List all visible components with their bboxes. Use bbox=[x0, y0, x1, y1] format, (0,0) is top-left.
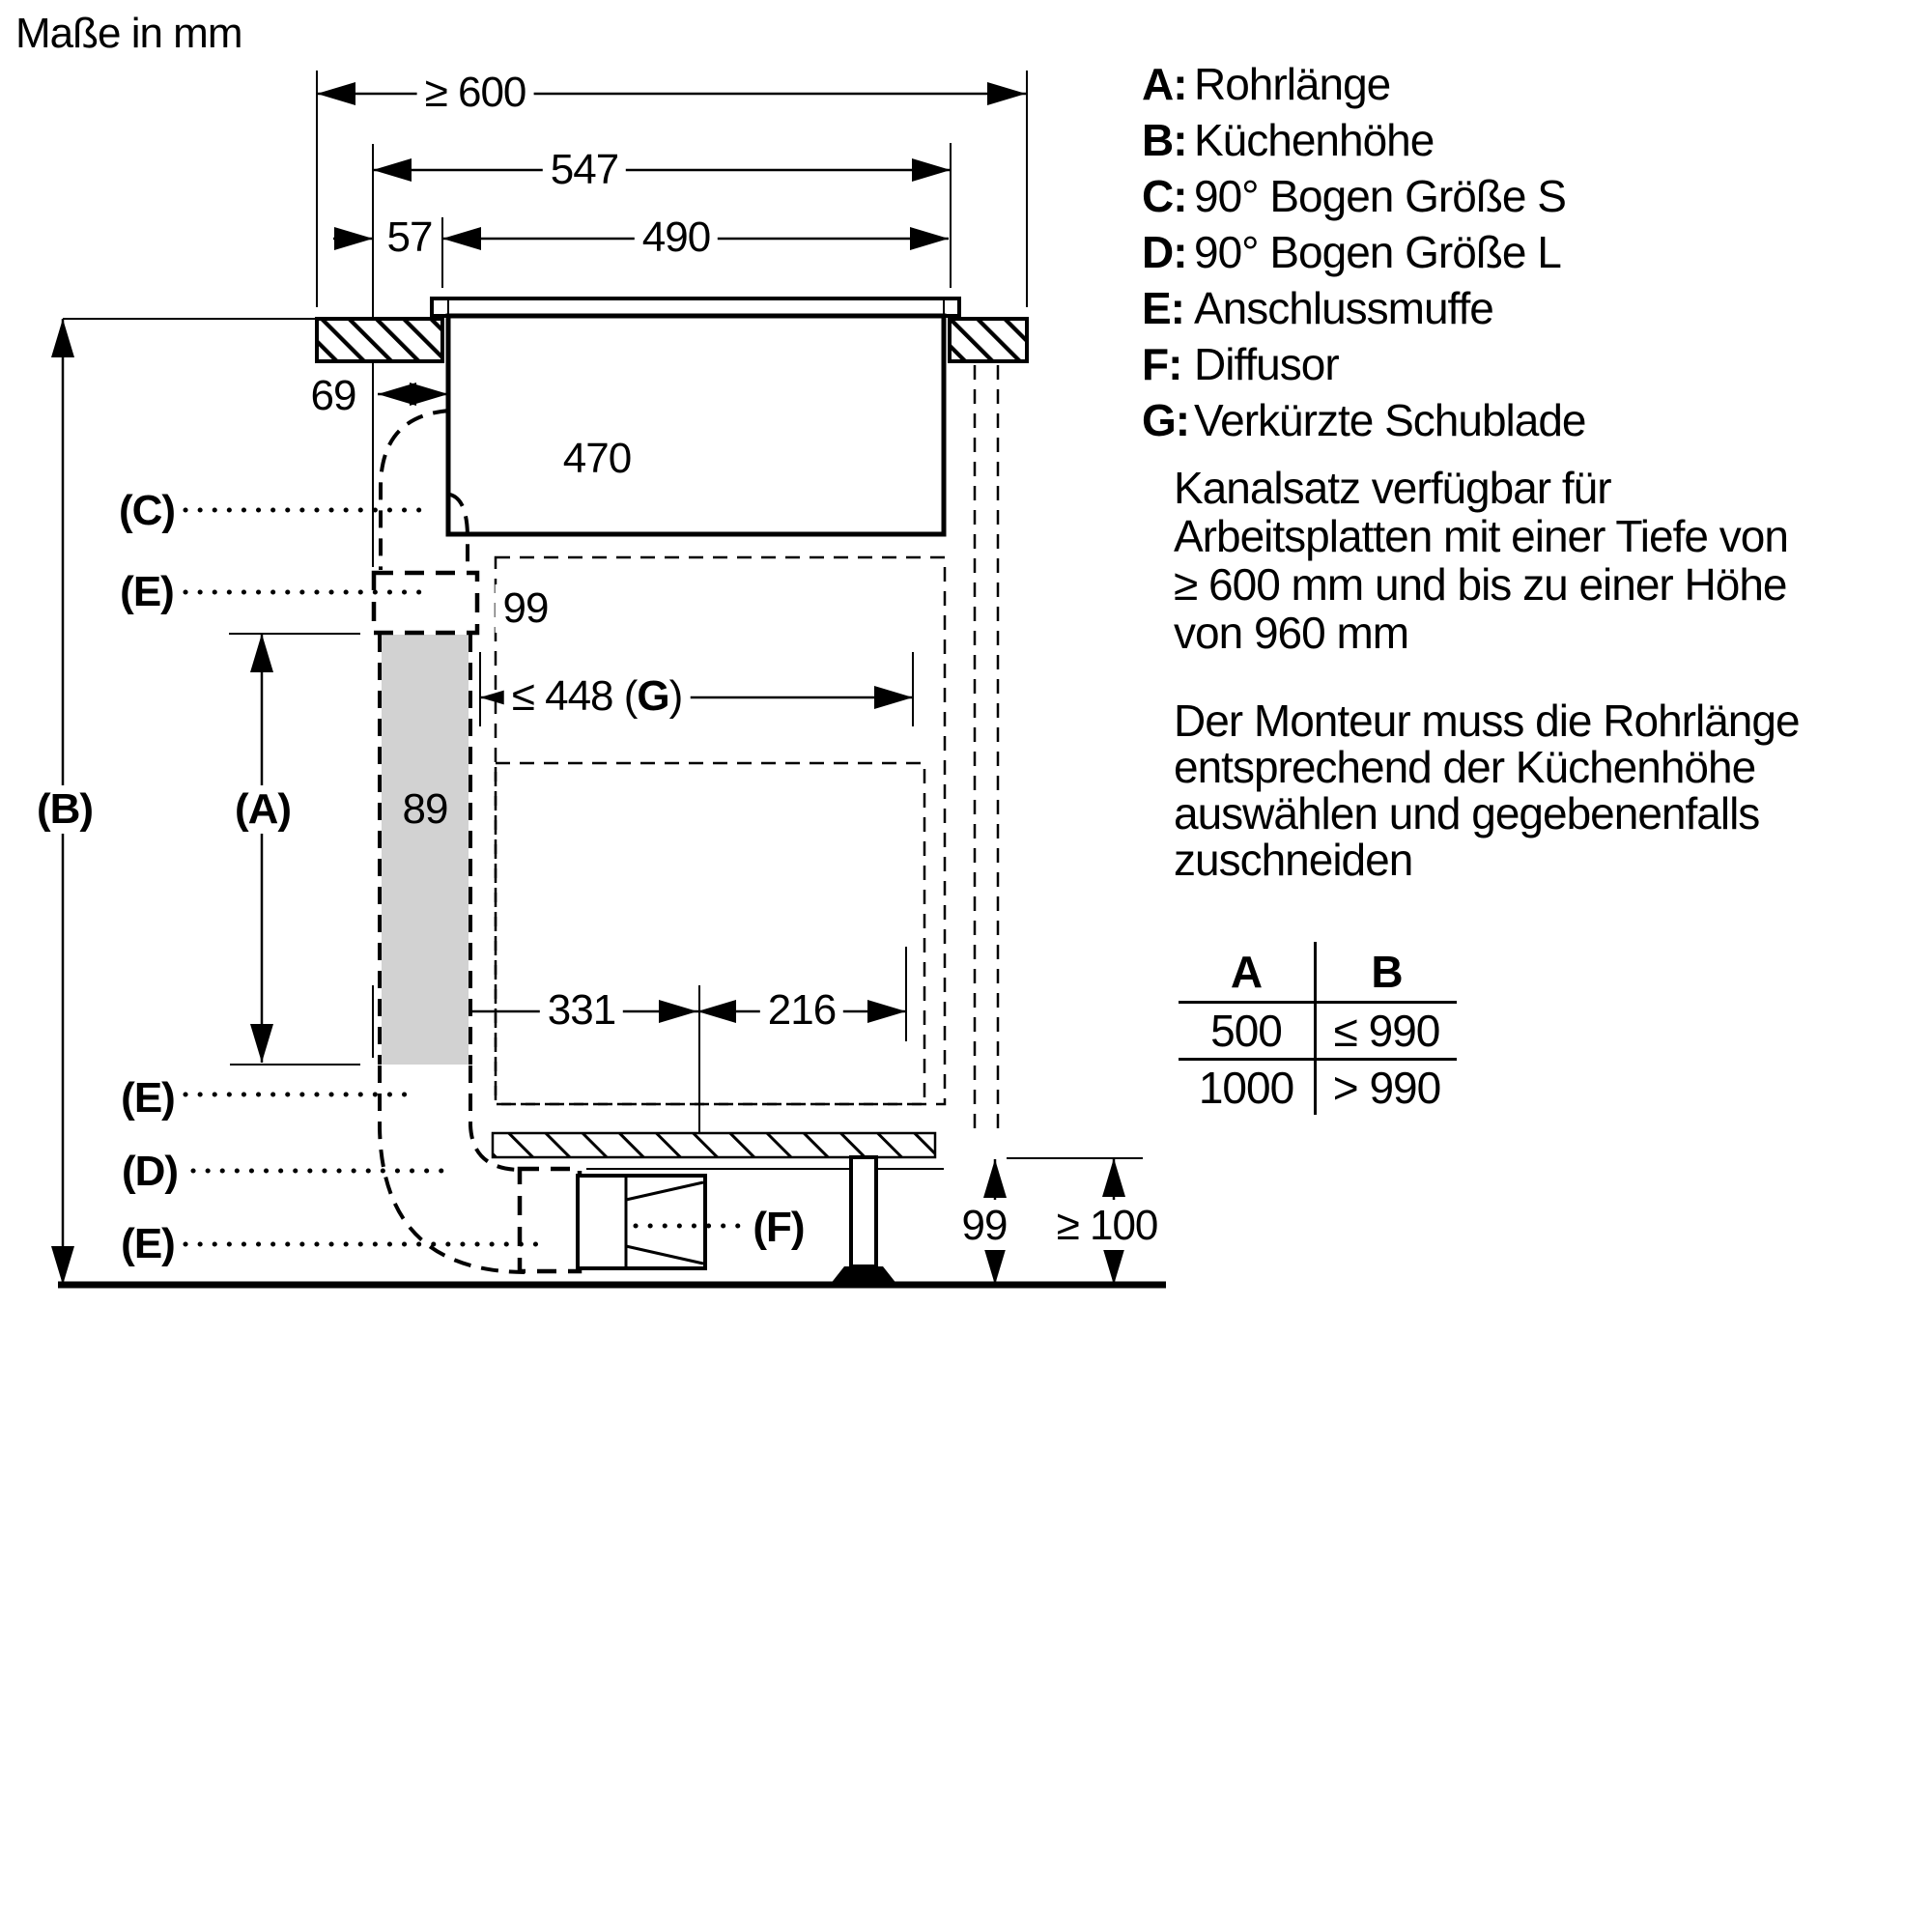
dim-547: 547 bbox=[543, 146, 626, 194]
note-line: von 960 mm bbox=[1174, 609, 1788, 657]
legend-item-g: G:Verkürzte Schublade bbox=[1142, 392, 1586, 448]
cabinet-leg bbox=[851, 1157, 876, 1266]
label-e2: (E) bbox=[115, 1074, 181, 1122]
note-line: Arbeitsplatten mit einer Tiefe von bbox=[1174, 512, 1788, 560]
dim-448-drawer: ≤ 448 (G) bbox=[504, 672, 691, 721]
connector-sleeve-top bbox=[374, 573, 477, 633]
hob-glass bbox=[432, 298, 959, 316]
dim-89: 89 bbox=[403, 785, 448, 834]
dim-min-100: ≥ 100 bbox=[1049, 1202, 1166, 1250]
page: Maße in mm ≥ 600 547 57 490 69 470 99 ≤ … bbox=[0, 0, 1932, 1932]
legend-item-e: E:Anschlussmuffe bbox=[1142, 280, 1586, 336]
diffusor bbox=[578, 1176, 705, 1268]
dim-depth-600: ≥ 600 bbox=[417, 69, 534, 117]
dim-69: 69 bbox=[303, 372, 364, 420]
dim-470: 470 bbox=[555, 435, 639, 483]
table-cell-a: 500 bbox=[1179, 1003, 1316, 1060]
hob-body bbox=[448, 316, 944, 534]
worktop-hatch-right bbox=[950, 319, 1027, 361]
legend-item-d: D:90° Bogen Größe L bbox=[1142, 224, 1586, 280]
installation-diagram bbox=[0, 0, 1932, 1932]
note-line: Der Monteur muss die Rohrlänge bbox=[1174, 697, 1800, 744]
drawer-box bbox=[496, 763, 924, 1104]
note-line: Kanalsatz verfügbar für bbox=[1174, 464, 1788, 512]
note-line: zuschneiden bbox=[1174, 837, 1800, 883]
connector-sleeve-bottom bbox=[520, 1169, 580, 1271]
table-row: 500 ≤ 990 bbox=[1179, 1003, 1457, 1060]
note-line: ≥ 600 mm und bis zu einer Höhe bbox=[1174, 560, 1788, 609]
note-line: entsprechend der Küchenhöhe bbox=[1174, 744, 1800, 790]
table-header-b: B bbox=[1316, 942, 1458, 1003]
legend: A:Rohrlänge B:Küchenhöhe C:90° Bogen Grö… bbox=[1142, 56, 1586, 448]
table-row: 1000 > 990 bbox=[1179, 1060, 1457, 1116]
legend-item-c: C:90° Bogen Größe S bbox=[1142, 168, 1586, 224]
dim-57: 57 bbox=[380, 213, 440, 262]
label-e3: (E) bbox=[115, 1220, 181, 1268]
note-line: auswählen und gegebenenfalls bbox=[1174, 790, 1800, 837]
legend-item-a: A:Rohrlänge bbox=[1142, 56, 1586, 112]
bend-c-outer bbox=[381, 411, 450, 570]
dim-99-connector: 99 bbox=[496, 584, 556, 633]
table-cell-b: ≤ 990 bbox=[1316, 1003, 1458, 1060]
dim-331: 331 bbox=[540, 986, 623, 1035]
label-d: (D) bbox=[116, 1148, 184, 1196]
label-c: (C) bbox=[113, 487, 181, 535]
pipe-length-table: A B 500 ≤ 990 1000 > 990 bbox=[1179, 942, 1457, 1115]
table-cell-b: > 990 bbox=[1316, 1060, 1458, 1116]
note-duct-availability: Kanalsatz verfügbar für Arbeitsplatten m… bbox=[1174, 464, 1788, 657]
dim-99-bottom: 99 bbox=[954, 1202, 1015, 1250]
label-a: (A) bbox=[229, 785, 297, 834]
dim-216: 216 bbox=[760, 986, 843, 1035]
worktop-hatch-left bbox=[317, 319, 442, 361]
duct-pipe bbox=[382, 635, 469, 1065]
plinth-shelf bbox=[493, 1133, 935, 1157]
label-f: (F) bbox=[747, 1204, 810, 1252]
table-cell-a: 1000 bbox=[1179, 1060, 1316, 1116]
dim-490: 490 bbox=[635, 213, 718, 262]
label-e1: (E) bbox=[114, 568, 180, 616]
table-header-row: A B bbox=[1179, 942, 1457, 1003]
label-b: (B) bbox=[31, 785, 99, 834]
legend-item-b: B:Küchenhöhe bbox=[1142, 112, 1586, 168]
legend-item-f: F:Diffusor bbox=[1142, 336, 1586, 392]
page-title: Maße in mm bbox=[15, 10, 241, 58]
table-header-a: A bbox=[1179, 942, 1316, 1003]
note-installer: Der Monteur muss die Rohrlänge entsprech… bbox=[1174, 697, 1800, 883]
